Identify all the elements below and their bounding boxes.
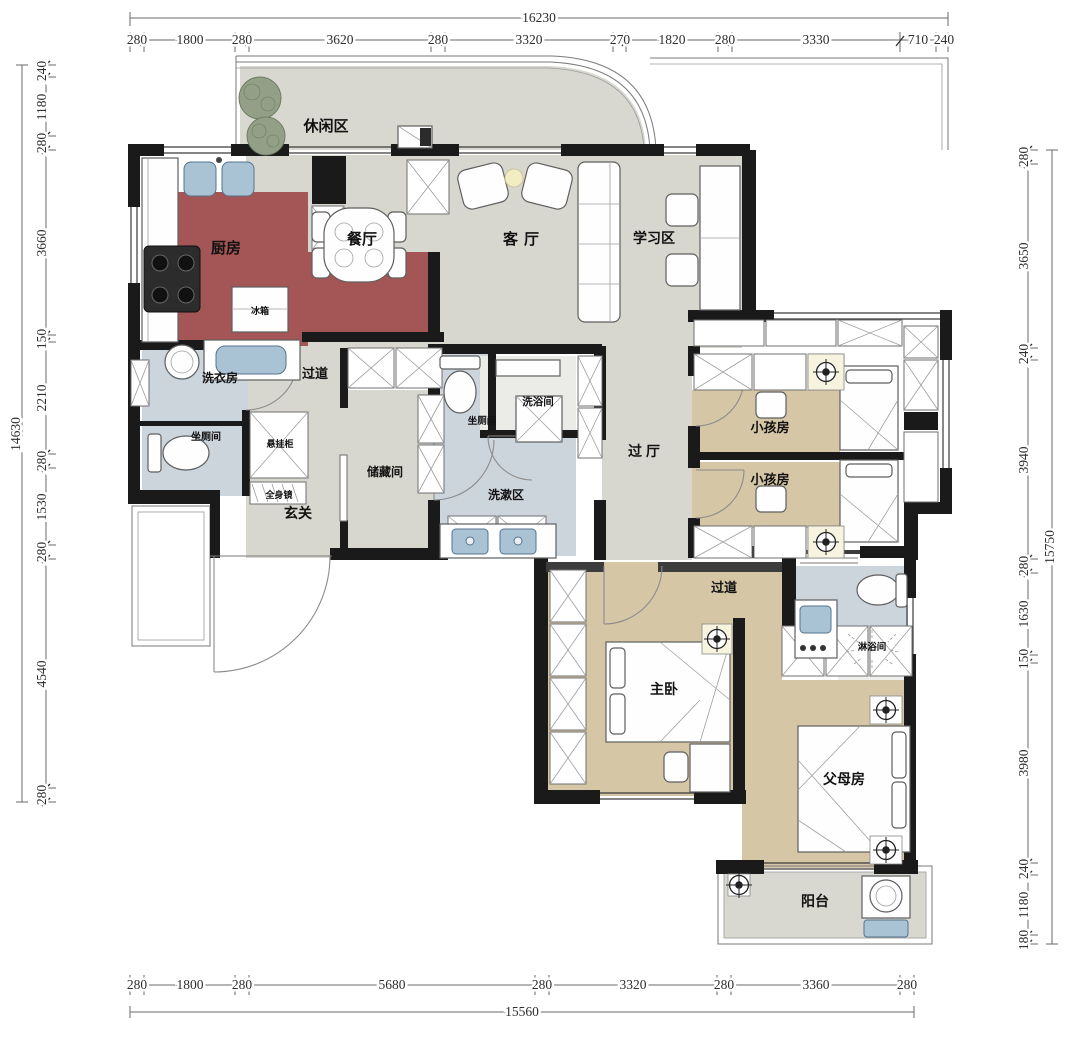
label-balcony: 阳台 <box>801 893 829 909</box>
closet-living-top <box>407 160 449 214</box>
svg-text:4540: 4540 <box>34 660 49 687</box>
svg-text:280: 280 <box>232 32 253 47</box>
dim-bottom-total: 15560 <box>505 1004 539 1019</box>
svg-text:280: 280 <box>34 133 49 154</box>
svg-text:280: 280 <box>34 785 49 806</box>
svg-text:3650: 3650 <box>1016 242 1031 269</box>
label-dining: 餐厅 <box>347 230 377 248</box>
svg-text:1180: 1180 <box>1016 892 1031 919</box>
label-toilet-mid: 坐厕间 <box>468 415 497 427</box>
svg-text:1800: 1800 <box>177 32 204 47</box>
label-hanging-cabinet: 悬挂柜 <box>265 438 293 449</box>
label-kids1: 小孩房 <box>750 420 789 435</box>
label-corridor-upper: 过道 <box>302 366 328 381</box>
svg-text:3330: 3330 <box>803 32 830 47</box>
svg-text:1820: 1820 <box>659 32 686 47</box>
closet-laundry-left <box>131 360 149 406</box>
dimension-right: 15750 280 3650 240 3940 280 1630 150 398… <box>1016 146 1058 950</box>
wardrobe-right-column <box>904 326 938 502</box>
dim-left-total: 14630 <box>8 417 23 451</box>
svg-text:240: 240 <box>934 32 955 47</box>
label-kitchen: 厨房 <box>211 239 241 257</box>
closet-rightwing-strip <box>694 320 902 346</box>
label-bath-mid: 洗浴间 <box>522 395 554 408</box>
svg-text:2210: 2210 <box>34 384 49 411</box>
label-hall: 过厅 <box>628 443 664 459</box>
kitchen-sink <box>184 157 254 196</box>
closet-storage-top <box>348 348 442 388</box>
svg-text:3320: 3320 <box>516 32 543 47</box>
svg-text:280: 280 <box>532 977 553 992</box>
svg-text:280: 280 <box>127 977 148 992</box>
label-leisure: 休闲区 <box>302 117 348 135</box>
sofa <box>578 162 620 322</box>
svg-text:240: 240 <box>1016 344 1031 365</box>
floor-leisure <box>240 66 646 150</box>
label-shower: 淋浴间 <box>858 641 887 653</box>
svg-text:1530: 1530 <box>34 493 49 520</box>
label-living: 客厅 <box>502 230 545 248</box>
dimension-top: 16230 280 1800 280 3620 280 3320 270 182… <box>126 10 954 52</box>
svg-text:280: 280 <box>34 542 49 563</box>
svg-text:1800: 1800 <box>177 977 204 992</box>
dim-top-total: 16230 <box>522 10 556 25</box>
label-entry: 玄关 <box>284 505 312 521</box>
label-toilet-left: 坐厕间 <box>191 430 221 443</box>
svg-text:1180: 1180 <box>34 94 49 121</box>
label-master: 主卧 <box>650 681 678 697</box>
stove <box>144 246 200 312</box>
svg-text:270: 270 <box>610 32 631 47</box>
label-kids2: 小孩房 <box>750 472 789 487</box>
svg-text:280: 280 <box>714 977 735 992</box>
label-mirror: 全身镜 <box>264 489 292 500</box>
svg-text:710: 710 <box>908 32 929 47</box>
label-corridor-lower: 过道 <box>711 580 737 595</box>
dim-right-total: 15750 <box>1042 530 1057 564</box>
wash-sinks <box>440 524 556 558</box>
svg-text:280: 280 <box>428 32 449 47</box>
svg-text:240: 240 <box>34 61 49 82</box>
svg-text:150: 150 <box>1016 649 1031 670</box>
svg-text:280: 280 <box>34 451 49 472</box>
svg-text:3360: 3360 <box>803 977 830 992</box>
svg-text:5680: 5680 <box>379 977 406 992</box>
svg-text:3620: 3620 <box>327 32 354 47</box>
svg-text:150: 150 <box>34 329 49 350</box>
floor-plan-drawing: 休闲区 厨房 餐厅 客厅 学习区 洗衣房 过道 坐厕间 悬挂柜 全身镜 玄关 储… <box>0 0 1080 1061</box>
label-wash-area: 洗漱区 <box>488 487 524 502</box>
label-laundry: 洗衣房 <box>202 370 238 385</box>
floor-plan-page: 休闲区 厨房 餐厅 客厅 学习区 洗衣房 过道 坐厕间 悬挂柜 全身镜 玄关 储… <box>0 0 1080 1061</box>
svg-text:280: 280 <box>897 977 918 992</box>
svg-text:280: 280 <box>715 32 736 47</box>
label-fridge: 冰箱 <box>251 305 269 316</box>
svg-text:240: 240 <box>1016 859 1031 880</box>
svg-text:280: 280 <box>232 977 253 992</box>
balcony-washer <box>862 876 910 937</box>
dimension-left: 14630 240 1180 280 3660 150 2210 280 153… <box>8 61 56 806</box>
leisure-console <box>398 126 432 148</box>
svg-text:180: 180 <box>1016 930 1031 951</box>
dimension-bottom: 15560 280 1800 280 5680 280 3320 280 336… <box>126 975 918 1019</box>
label-parents: 父母房 <box>822 771 865 787</box>
svg-text:3940: 3940 <box>1016 446 1031 473</box>
svg-text:3660: 3660 <box>34 229 49 256</box>
svg-text:280: 280 <box>1016 147 1031 168</box>
svg-text:280: 280 <box>127 32 148 47</box>
floor-parents-notch <box>742 622 782 680</box>
svg-text:3320: 3320 <box>620 977 647 992</box>
svg-text:1630: 1630 <box>1016 600 1031 627</box>
label-study: 学习区 <box>633 230 675 246</box>
svg-text:280: 280 <box>1016 556 1031 577</box>
parents-bed <box>798 726 910 852</box>
label-storage: 储藏间 <box>367 464 403 479</box>
svg-text:3980: 3980 <box>1016 749 1031 776</box>
